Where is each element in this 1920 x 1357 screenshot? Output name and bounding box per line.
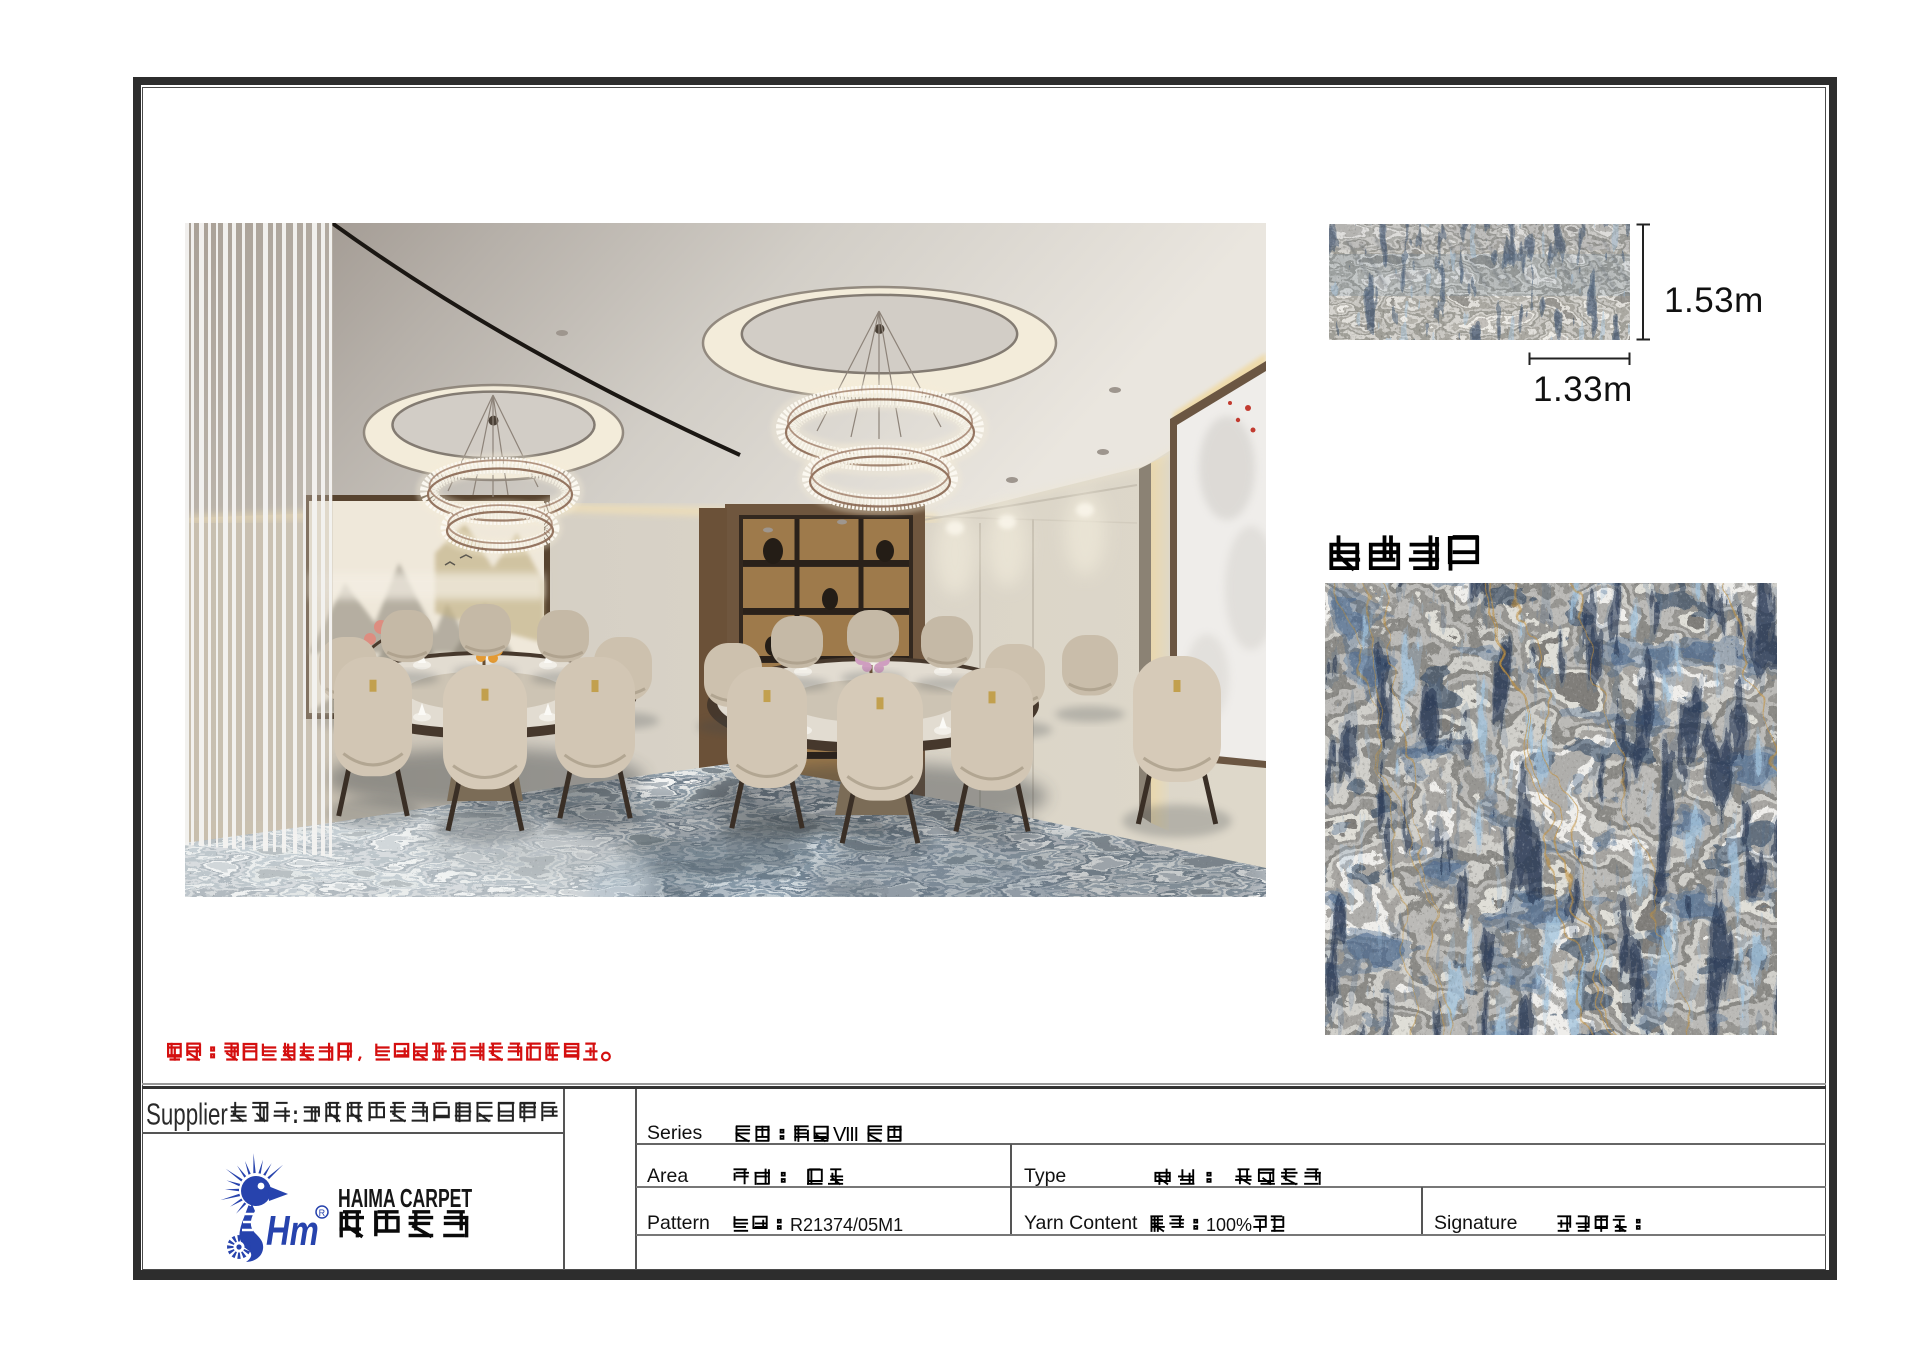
svg-text:VIII: VIII: [833, 1124, 859, 1146]
svg-text:HAIMA CARPET: HAIMA CARPET: [338, 1184, 473, 1213]
svg-text:Supplier: Supplier: [146, 1097, 228, 1131]
svg-text:Hm: Hm: [266, 1207, 319, 1254]
svg-text:R: R: [319, 1208, 326, 1218]
